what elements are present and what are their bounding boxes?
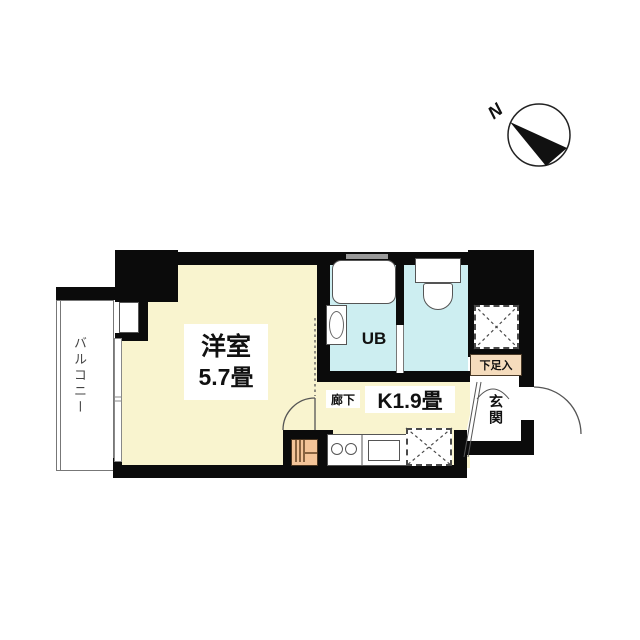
shoe-storage-label: 下足入 — [480, 357, 513, 373]
bath-label-text: UB — [362, 329, 387, 349]
balcony-label: バルコニー — [70, 336, 89, 416]
main-room-label: 洋室 5.7畳 — [184, 324, 268, 400]
shoe-storage-box: 下足入 — [470, 354, 522, 376]
closet-lower — [406, 428, 452, 466]
kitchen-label-text: K1.9畳 — [377, 385, 442, 415]
bath-door — [396, 325, 404, 373]
corridor-label-text: 廊下 — [331, 391, 355, 408]
entrance-label: 玄関 — [486, 394, 506, 426]
entrance-door-arc — [534, 387, 581, 434]
floor-plan: 下足入 洋室 5.7畳 UB 廊下 K1.9畳 玄関 バルコニー N — [0, 0, 640, 640]
bath-label: UB — [354, 326, 394, 352]
balcony-window — [114, 338, 122, 462]
wall-segment — [113, 465, 467, 478]
washbasin-bowl — [329, 311, 344, 339]
bathtub — [332, 260, 396, 304]
compass-north-label: N — [484, 99, 507, 124]
stove-burner-icon — [331, 443, 343, 455]
pipe-space-notch — [119, 302, 139, 333]
corridor-label: 廊下 — [326, 390, 360, 408]
entrance-label-text: 玄関 — [488, 394, 504, 426]
utility-box — [291, 439, 318, 466]
balcony-label-text: バルコニー — [72, 336, 87, 416]
toilet-tank — [415, 258, 461, 283]
wall-segment — [317, 371, 470, 382]
kitchen-label: K1.9畳 — [365, 386, 455, 413]
bath-window — [346, 254, 388, 259]
wall-segment — [468, 250, 524, 305]
kitchen-sink — [368, 440, 400, 461]
wall-segment — [396, 265, 404, 325]
compass-north-text: N — [484, 99, 507, 123]
closet-upper — [474, 305, 519, 349]
wall-segment — [115, 250, 178, 302]
main-room-name: 洋室 — [201, 331, 251, 364]
compass-icon — [508, 104, 570, 166]
wall-segment — [56, 287, 122, 300]
entrance-door-hinge-block — [521, 420, 534, 448]
main-room-size: 5.7畳 — [199, 363, 254, 393]
stove-burner-icon — [345, 443, 357, 455]
